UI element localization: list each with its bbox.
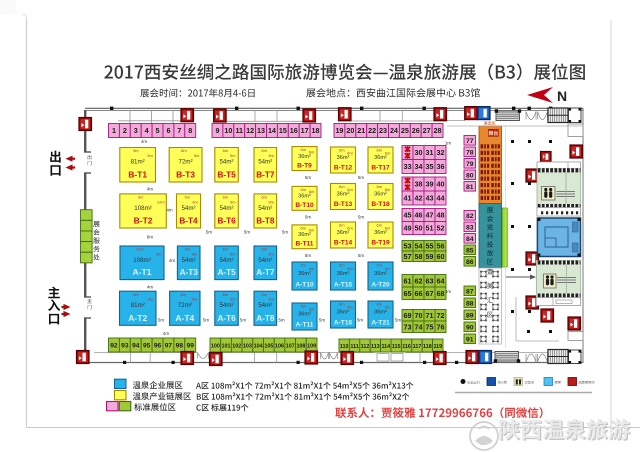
svg-text:5m: 5m	[278, 318, 285, 323]
svg-text:6m: 6m	[261, 292, 267, 297]
svg-text:9: 9	[215, 126, 219, 135]
svg-text:75: 75	[426, 322, 434, 331]
svg-text:54m²: 54m²	[219, 159, 233, 166]
svg-text:98: 98	[176, 342, 184, 349]
svg-text:54m²: 54m²	[258, 159, 272, 166]
svg-text:A-T21: A-T21	[371, 319, 390, 326]
svg-text:B-T9: B-T9	[297, 162, 312, 169]
svg-text:96: 96	[154, 342, 162, 349]
svg-text:61: 61	[404, 276, 412, 285]
svg-text:5m: 5m	[206, 230, 213, 235]
svg-text:15: 15	[279, 126, 287, 135]
svg-text:6m: 6m	[300, 187, 306, 192]
svg-text:9m: 9m	[192, 199, 198, 204]
svg-text:4m: 4m	[166, 208, 173, 213]
svg-text:33: 33	[404, 162, 412, 171]
svg-text:36m²: 36m²	[337, 192, 350, 198]
svg-text:49: 49	[404, 224, 412, 233]
svg-text:36m²: 36m²	[298, 232, 311, 238]
svg-text:4m: 4m	[147, 187, 154, 192]
svg-text:A-T15: A-T15	[334, 281, 353, 288]
svg-text:36m²: 36m²	[298, 154, 311, 160]
svg-text:B-T14: B-T14	[334, 240, 353, 247]
svg-text:10: 10	[224, 126, 232, 135]
svg-text:9m: 9m	[138, 195, 144, 200]
svg-text:36m²: 36m²	[298, 312, 311, 318]
svg-text:56: 56	[437, 241, 445, 250]
svg-text:32: 32	[437, 148, 445, 157]
svg-text:5m: 5m	[358, 175, 365, 180]
svg-text:42: 42	[415, 194, 423, 203]
svg-text:A-T3: A-T3	[180, 268, 199, 277]
svg-text:91: 91	[466, 336, 474, 343]
svg-text:6m: 6m	[261, 247, 267, 252]
svg-text:6m: 6m	[223, 148, 229, 153]
svg-text:105: 105	[264, 344, 273, 350]
svg-text:9m: 9m	[192, 297, 198, 302]
svg-text:A-T8: A-T8	[256, 314, 275, 323]
svg-text:82: 82	[466, 213, 474, 220]
svg-text:36m²: 36m²	[337, 230, 350, 236]
svg-text:72m²: 72m²	[178, 302, 192, 309]
svg-text:6m: 6m	[385, 150, 391, 155]
svg-text:4m: 4m	[169, 258, 176, 263]
svg-text:6m: 6m	[185, 247, 191, 252]
svg-text:36m²: 36m²	[374, 155, 387, 161]
svg-text:B-T18: B-T18	[371, 201, 390, 208]
svg-text:110: 110	[340, 344, 349, 350]
svg-text:36m²: 36m²	[374, 230, 387, 236]
svg-text:B-T13: B-T13	[334, 201, 353, 208]
svg-text:8: 8	[188, 126, 192, 135]
svg-text:83: 83	[466, 224, 474, 231]
svg-text:6m: 6m	[347, 150, 353, 155]
svg-text:36m²: 36m²	[374, 310, 387, 316]
svg-text:54m²: 54m²	[258, 257, 272, 264]
svg-text:6m: 6m	[347, 305, 353, 310]
svg-text:59: 59	[426, 252, 434, 261]
svg-text:92: 92	[110, 342, 118, 349]
svg-text:A-T1: A-T1	[133, 267, 152, 277]
svg-text:1: 1	[112, 126, 116, 135]
svg-text:B-T10: B-T10	[295, 202, 314, 209]
svg-text:5m: 5m	[282, 230, 289, 235]
svg-text:54m²: 54m²	[219, 257, 233, 264]
svg-text:62: 62	[415, 276, 423, 285]
svg-text:44: 44	[437, 194, 445, 203]
svg-text:64: 64	[437, 276, 445, 285]
svg-text:39: 39	[426, 180, 434, 189]
svg-text:113: 113	[371, 344, 380, 350]
svg-text:114: 114	[381, 344, 390, 350]
svg-text:9m: 9m	[230, 199, 236, 204]
svg-text:6m: 6m	[309, 149, 315, 154]
svg-text:22: 22	[368, 126, 376, 135]
svg-text:41: 41	[404, 194, 412, 203]
svg-text:60: 60	[437, 252, 445, 261]
svg-text:6m: 6m	[300, 147, 306, 152]
svg-text:9m: 9m	[268, 297, 274, 302]
svg-text:16: 16	[290, 126, 298, 135]
svg-text:6m: 6m	[300, 226, 306, 231]
svg-text:5m: 5m	[395, 318, 402, 323]
svg-text:6m: 6m	[261, 195, 267, 200]
svg-text:6m: 6m	[185, 195, 191, 200]
svg-text:101: 101	[222, 344, 231, 350]
svg-text:5m: 5m	[305, 253, 312, 258]
svg-text:102: 102	[232, 344, 241, 350]
svg-text:72: 72	[437, 311, 445, 320]
svg-text:63: 63	[426, 276, 434, 285]
svg-text:118: 118	[423, 344, 432, 350]
svg-text:9m: 9m	[268, 199, 274, 204]
svg-text:3: 3	[134, 126, 138, 135]
svg-text:36m²: 36m²	[374, 271, 387, 277]
svg-text:B-T6: B-T6	[217, 217, 236, 226]
svg-text:6m: 6m	[385, 305, 391, 310]
svg-text:6m: 6m	[385, 225, 391, 230]
svg-text:107: 107	[286, 344, 295, 350]
svg-text:5m: 5m	[305, 215, 312, 220]
svg-text:5: 5	[156, 126, 160, 135]
svg-text:53: 53	[404, 241, 412, 250]
svg-text:4m: 4m	[147, 285, 154, 290]
svg-text:6m: 6m	[376, 263, 382, 268]
svg-text:5m: 5m	[358, 253, 365, 258]
svg-text:55: 55	[426, 241, 434, 250]
svg-text:6m: 6m	[223, 247, 229, 252]
svg-text:54m²: 54m²	[258, 205, 272, 212]
svg-text:57: 57	[404, 252, 412, 261]
svg-text:1m: 1m	[445, 141, 452, 146]
svg-text:81m²: 81m²	[131, 159, 145, 166]
svg-text:54m²: 54m²	[219, 302, 233, 309]
svg-text:81: 81	[466, 184, 474, 191]
svg-text:9m: 9m	[230, 153, 236, 158]
svg-text:108m²: 108m²	[133, 257, 151, 264]
svg-text:B-T2: B-T2	[134, 216, 153, 226]
svg-text:84: 84	[466, 236, 474, 243]
svg-text:6m: 6m	[347, 187, 353, 192]
svg-text:6m: 6m	[261, 148, 267, 153]
svg-text:A-T16: A-T16	[334, 319, 353, 326]
svg-text:66: 66	[415, 289, 423, 298]
svg-text:A-T5: A-T5	[217, 268, 236, 277]
svg-text:108m²: 108m²	[134, 205, 152, 212]
svg-text:46: 46	[415, 211, 423, 220]
svg-text:7: 7	[177, 126, 181, 135]
svg-text:4: 4	[145, 126, 149, 135]
svg-text:21: 21	[357, 126, 365, 135]
svg-text:5m: 5m	[244, 230, 251, 235]
svg-text:99: 99	[187, 342, 195, 349]
svg-text:9m: 9m	[230, 297, 236, 302]
svg-text:B-T1: B-T1	[128, 170, 147, 180]
svg-text:68: 68	[437, 289, 445, 298]
svg-text:36m²: 36m²	[298, 271, 311, 277]
svg-text:80: 80	[466, 172, 474, 179]
svg-text:5m: 5m	[203, 318, 210, 323]
svg-text:17: 17	[301, 126, 309, 135]
svg-text:A-T11: A-T11	[296, 321, 314, 328]
svg-text:6m: 6m	[347, 225, 353, 230]
svg-text:54m²: 54m²	[258, 302, 272, 309]
svg-text:51: 51	[426, 224, 434, 233]
svg-text:74: 74	[415, 322, 423, 331]
svg-text:9m: 9m	[194, 153, 200, 158]
svg-text:34: 34	[415, 162, 423, 171]
svg-text:B-T5: B-T5	[217, 171, 236, 180]
svg-text:47: 47	[426, 211, 434, 220]
svg-text:23: 23	[379, 126, 387, 135]
svg-text:19: 19	[335, 126, 343, 135]
svg-text:36m²: 36m²	[337, 155, 350, 161]
svg-text:97: 97	[165, 342, 173, 349]
svg-text:54m²: 54m²	[219, 205, 233, 212]
svg-text:93: 93	[121, 342, 129, 349]
svg-text:B-T8: B-T8	[256, 217, 275, 226]
svg-text:6m: 6m	[309, 189, 315, 194]
svg-text:8m: 8m	[181, 148, 187, 153]
svg-text:9m: 9m	[192, 251, 198, 256]
svg-text:6: 6	[166, 126, 170, 135]
svg-text:109: 109	[307, 344, 316, 350]
svg-text:2: 2	[123, 126, 127, 135]
svg-text:25: 25	[401, 126, 409, 135]
svg-text:6m: 6m	[347, 266, 353, 271]
svg-text:5m: 5m	[240, 318, 247, 323]
svg-text:6m: 6m	[309, 228, 315, 233]
svg-text:71: 71	[426, 311, 434, 320]
svg-text:8m: 8m	[180, 292, 186, 297]
svg-text:106: 106	[275, 344, 284, 350]
svg-text:6m: 6m	[385, 266, 391, 271]
svg-text:6m: 6m	[339, 263, 345, 268]
svg-text:12m: 12m	[136, 247, 144, 252]
svg-text:35: 35	[426, 162, 434, 171]
svg-text:6m: 6m	[339, 148, 345, 153]
svg-text:13: 13	[257, 126, 265, 135]
svg-text:50: 50	[415, 224, 423, 233]
svg-text:43: 43	[426, 194, 434, 203]
svg-text:14: 14	[268, 126, 276, 135]
svg-text:27: 27	[423, 126, 431, 135]
svg-text:18: 18	[312, 126, 320, 135]
svg-text:38: 38	[415, 180, 423, 189]
svg-text:36: 36	[437, 162, 445, 171]
svg-text:100: 100	[211, 344, 220, 350]
svg-text:9m: 9m	[268, 251, 274, 256]
svg-text:6m: 6m	[223, 195, 229, 200]
svg-text:B-T11: B-T11	[296, 241, 314, 248]
svg-text:77: 77	[466, 138, 474, 145]
svg-text:6m: 6m	[376, 223, 382, 228]
svg-text:58: 58	[415, 252, 423, 261]
svg-text:A-T7: A-T7	[256, 268, 275, 277]
svg-text:117: 117	[413, 344, 422, 350]
svg-text:6m: 6m	[339, 302, 345, 307]
svg-text:54m²: 54m²	[181, 205, 195, 212]
svg-text:94: 94	[132, 342, 140, 349]
svg-text:A-T20: A-T20	[371, 281, 390, 288]
svg-text:B-T4: B-T4	[179, 217, 198, 226]
svg-text:40: 40	[437, 180, 445, 189]
svg-text:9m: 9m	[148, 297, 154, 302]
svg-text:9m: 9m	[230, 251, 236, 256]
svg-text:73: 73	[404, 322, 412, 331]
svg-text:9m: 9m	[156, 251, 162, 256]
svg-text:88: 88	[466, 300, 474, 307]
svg-text:36m²: 36m²	[337, 271, 350, 277]
svg-text:54: 54	[415, 241, 423, 250]
svg-text:36m²: 36m²	[298, 194, 311, 200]
svg-text:30: 30	[415, 148, 423, 157]
svg-text:5m: 5m	[357, 318, 364, 323]
svg-text:4m: 4m	[141, 139, 148, 144]
svg-text:95: 95	[143, 342, 151, 349]
svg-text:11: 11	[235, 126, 243, 135]
svg-text:4m: 4m	[163, 331, 170, 336]
svg-text:104: 104	[254, 344, 263, 350]
svg-text:B-T3: B-T3	[176, 170, 195, 180]
svg-text:26: 26	[412, 126, 420, 135]
svg-text:28: 28	[434, 126, 442, 135]
svg-text:6m: 6m	[223, 292, 229, 297]
svg-text:6m: 6m	[339, 223, 345, 228]
svg-text:103: 103	[243, 344, 252, 350]
svg-text:67: 67	[426, 289, 434, 298]
svg-text:70: 70	[415, 311, 423, 320]
svg-text:54m²: 54m²	[182, 257, 196, 264]
svg-text:6m: 6m	[309, 266, 315, 271]
svg-text:36m²: 36m²	[374, 192, 387, 198]
svg-text:48: 48	[437, 211, 445, 220]
svg-text:24: 24	[390, 126, 398, 135]
svg-text:69: 69	[404, 311, 412, 320]
svg-text:90: 90	[466, 324, 474, 331]
svg-text:31: 31	[426, 148, 434, 157]
svg-text:8m: 8m	[147, 235, 154, 240]
svg-text:6m: 6m	[376, 184, 382, 189]
svg-text:108: 108	[296, 344, 305, 350]
svg-text:78: 78	[466, 149, 474, 156]
svg-text:N: N	[557, 88, 567, 104]
svg-text:A-T6: A-T6	[217, 314, 236, 323]
svg-text:111: 111	[350, 344, 358, 350]
svg-text:9m: 9m	[133, 292, 139, 297]
svg-text:5m: 5m	[158, 318, 165, 323]
svg-text:A-T2: A-T2	[128, 313, 147, 323]
svg-text:B-T19: B-T19	[371, 240, 390, 247]
svg-text:119: 119	[433, 344, 442, 350]
svg-text:6m: 6m	[300, 304, 306, 309]
svg-text:5m: 5m	[305, 175, 312, 180]
svg-text:20: 20	[346, 126, 354, 135]
svg-text:A-T4: A-T4	[175, 313, 194, 323]
svg-text:112: 112	[361, 344, 370, 350]
svg-text:76: 76	[437, 322, 445, 331]
svg-text:5m: 5m	[319, 318, 326, 323]
svg-text:9m: 9m	[268, 153, 274, 158]
svg-text:B-T17: B-T17	[371, 165, 390, 172]
svg-text:12m: 12m	[157, 199, 165, 204]
svg-text:116: 116	[402, 344, 411, 350]
svg-text:6m: 6m	[376, 148, 382, 153]
svg-text:9m: 9m	[147, 153, 153, 158]
svg-text:9m: 9m	[133, 148, 139, 153]
svg-text:81m²: 81m²	[131, 302, 145, 309]
svg-text:115: 115	[392, 344, 401, 350]
svg-text:52: 52	[437, 224, 445, 233]
svg-text:89: 89	[466, 312, 474, 319]
svg-text:A-T10: A-T10	[295, 281, 314, 288]
svg-text:45: 45	[404, 211, 412, 220]
svg-text:65: 65	[404, 289, 412, 298]
svg-text:6m: 6m	[339, 184, 345, 189]
svg-text:5m: 5m	[358, 215, 365, 220]
svg-text:87: 87	[466, 288, 474, 295]
svg-text:B-T7: B-T7	[256, 171, 275, 180]
svg-text:6m: 6m	[385, 187, 391, 192]
svg-text:36m²: 36m²	[337, 310, 350, 316]
svg-text:6m: 6m	[309, 307, 315, 312]
svg-text:86: 86	[466, 259, 474, 266]
svg-text:12: 12	[246, 126, 254, 135]
svg-text:79: 79	[466, 161, 474, 168]
svg-text:6m: 6m	[300, 263, 306, 268]
svg-text:85: 85	[466, 247, 474, 254]
svg-text:6m: 6m	[376, 302, 382, 307]
svg-text:72m²: 72m²	[179, 159, 193, 166]
svg-text:B-T12: B-T12	[334, 165, 353, 172]
